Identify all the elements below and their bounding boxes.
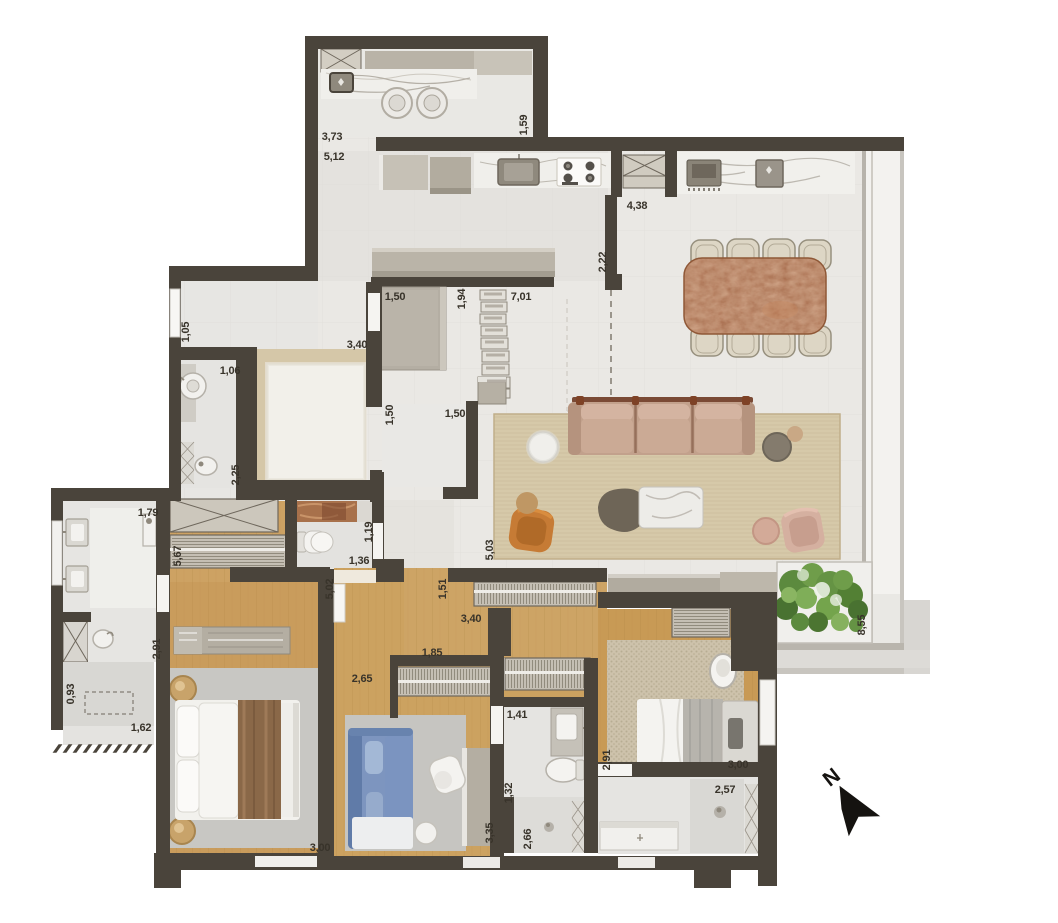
svg-text:5,67: 5,67 [172, 546, 184, 567]
svg-text:3,40: 3,40 [347, 339, 368, 351]
svg-text:2,57: 2,57 [715, 784, 736, 796]
svg-text:1,50: 1,50 [384, 405, 396, 426]
svg-text:1,36: 1,36 [349, 555, 370, 567]
svg-text:5,02: 5,02 [324, 579, 336, 600]
svg-text:1,62: 1,62 [131, 722, 152, 734]
svg-text:3,40: 3,40 [461, 613, 482, 625]
svg-text:1,85: 1,85 [422, 647, 443, 659]
svg-text:3,73: 3,73 [322, 131, 343, 143]
svg-text:1,50: 1,50 [445, 408, 466, 420]
svg-text:2,22: 2,22 [597, 252, 609, 273]
svg-text:3,00: 3,00 [310, 842, 331, 854]
svg-text:1,06: 1,06 [220, 365, 241, 377]
svg-text:4,38: 4,38 [627, 200, 648, 212]
svg-text:3,00: 3,00 [728, 759, 749, 771]
svg-text:2,66: 2,66 [522, 829, 534, 850]
svg-text:8,55: 8,55 [856, 615, 868, 636]
svg-text:2,91: 2,91 [151, 639, 163, 660]
svg-text:1,79: 1,79 [138, 507, 159, 519]
svg-text:1,50: 1,50 [385, 291, 406, 303]
svg-text:2,65: 2,65 [352, 673, 373, 685]
svg-text:1,05: 1,05 [180, 322, 192, 343]
svg-text:1,94: 1,94 [456, 288, 468, 310]
svg-text:0,93: 0,93 [65, 684, 77, 705]
svg-text:5,12: 5,12 [324, 151, 345, 163]
svg-text:1,41: 1,41 [507, 709, 528, 721]
svg-text:7,01: 7,01 [511, 291, 532, 303]
svg-text:1,51: 1,51 [437, 579, 449, 600]
svg-text:1,32: 1,32 [503, 783, 515, 804]
svg-text:1,19: 1,19 [363, 522, 375, 543]
svg-text:2,91: 2,91 [601, 750, 613, 771]
svg-text:1,59: 1,59 [518, 115, 530, 136]
svg-text:3,35: 3,35 [484, 823, 496, 844]
svg-text:2,25: 2,25 [230, 465, 242, 486]
svg-text:5,03: 5,03 [484, 540, 496, 561]
